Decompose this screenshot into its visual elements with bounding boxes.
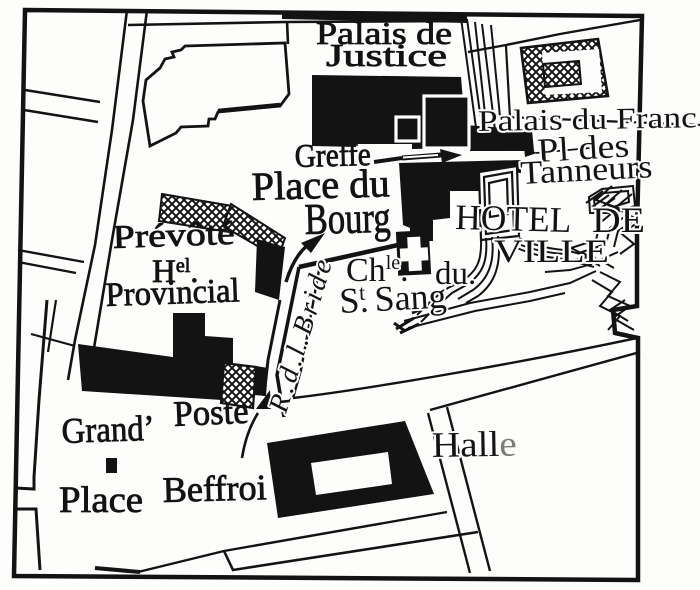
svg-text:Halle: Halle (431, 424, 517, 465)
svg-text:St.Sang: St.Sang (338, 275, 447, 321)
svg-text:Beffroi: Beffroi (162, 467, 267, 510)
svg-text:Place: Place (59, 480, 143, 521)
svg-text:Prévôté: Prévôté (112, 216, 235, 256)
svg-text:VILLE: VILLE (494, 234, 609, 270)
svg-text:Bourg: Bourg (304, 193, 391, 244)
svg-text:Poste: Poste (173, 391, 250, 434)
svg-text:Tanneurs: Tanneurs (520, 149, 654, 192)
svg-text:Provincial: Provincial (105, 272, 240, 314)
svg-text:Grand’: Grand’ (61, 408, 155, 451)
svg-text:Justice: Justice (326, 37, 447, 73)
